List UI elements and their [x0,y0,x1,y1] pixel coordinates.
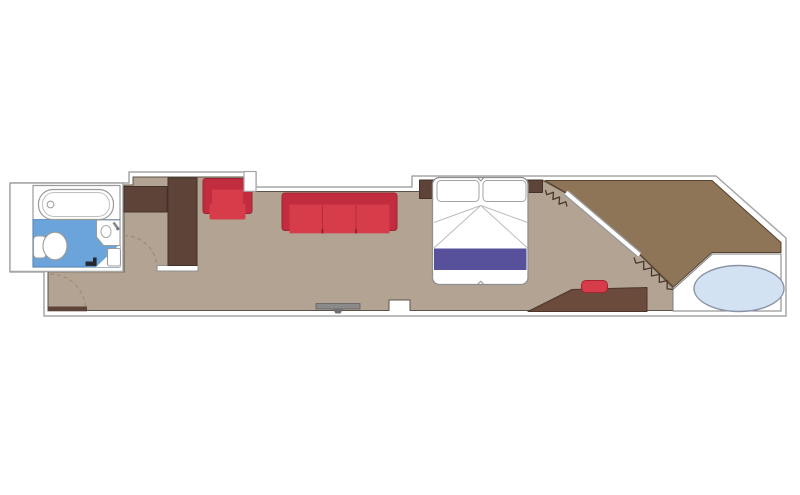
entry-door [48,307,88,312]
bathroom-door-stop-2 [93,258,97,266]
wardrobe-column [168,178,197,266]
armchair-cushion [210,204,246,220]
pillow-left [437,181,479,202]
sink-basin [101,226,111,238]
pillow-right [483,181,526,202]
stool [582,281,608,293]
tv-console [316,304,360,310]
sofa-seats [290,205,390,234]
floor-plan-svg [0,0,800,495]
wall-step [244,172,256,192]
bathroom-shelf [108,249,121,267]
floor-plan-canvas [0,0,800,495]
closet-cabinet [124,187,167,213]
hot-tub [694,266,784,312]
bed-runner [434,249,527,271]
sink-faucet-knob [116,227,119,230]
bathtub-drain [47,201,54,208]
toilet-bowl [43,232,67,260]
nightstand-right [527,180,543,193]
closet-wall [157,266,198,272]
